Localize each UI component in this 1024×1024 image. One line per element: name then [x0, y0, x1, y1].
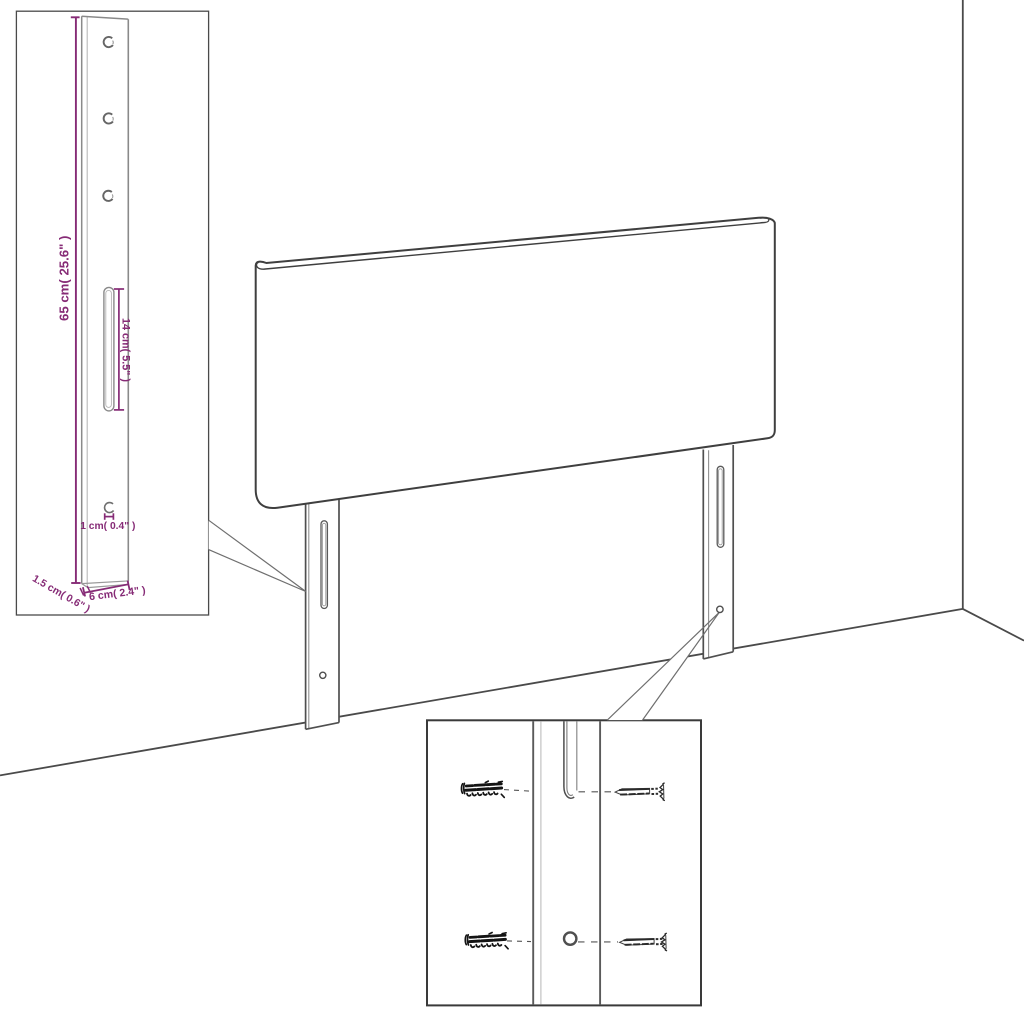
svg-text:14 cm( 5.5" ): 14 cm( 5.5" ) [119, 318, 131, 382]
svg-text:65 cm( 25.6" ): 65 cm( 25.6" ) [57, 236, 72, 321]
svg-text:1 cm( 0.4" ): 1 cm( 0.4" ) [80, 521, 135, 532]
